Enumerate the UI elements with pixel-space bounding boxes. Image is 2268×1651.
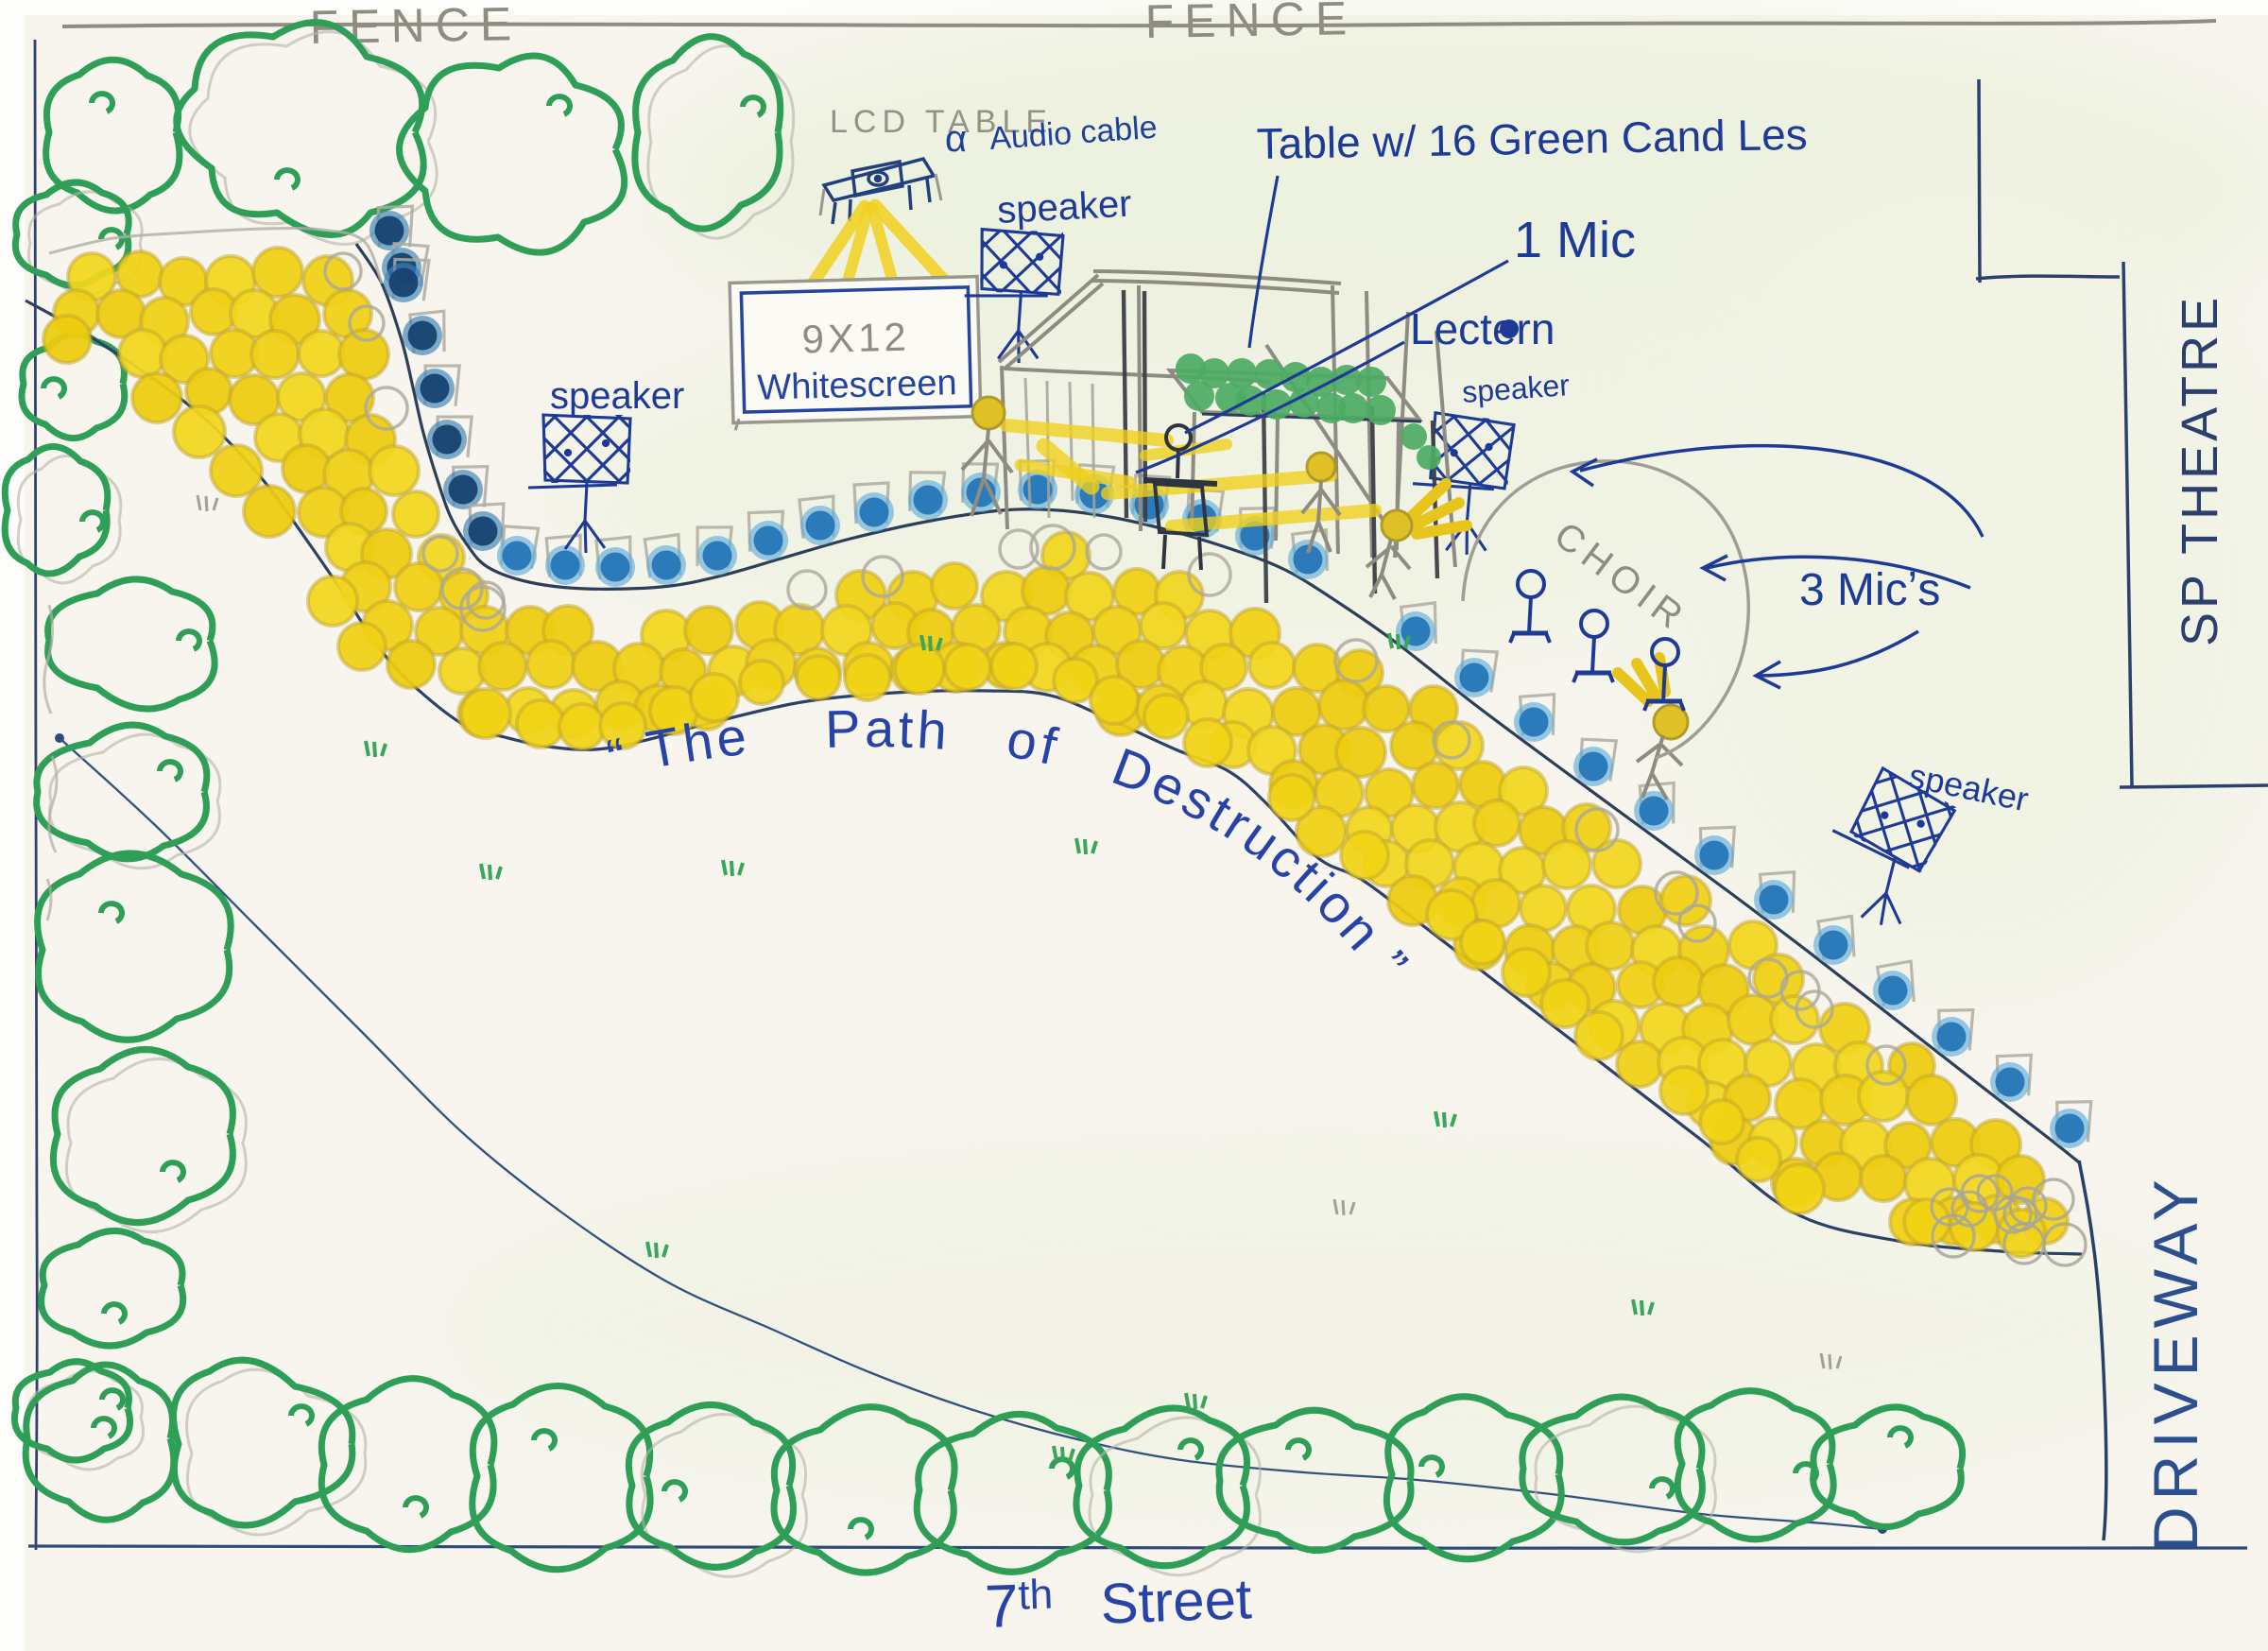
svg-text:speaker: speaker (550, 375, 684, 417)
svg-text:DRIVEWAY: DRIVEWAY (2140, 1173, 2210, 1552)
svg-text:1 Mic: 1 Mic (1514, 212, 1636, 268)
svg-text:FENCE: FENCE (1144, 0, 1357, 48)
svg-text:Lectern: Lectern (1410, 304, 1555, 353)
svg-text:α: α (945, 118, 967, 160)
svg-text:Whitescreen: Whitescreen (757, 363, 957, 408)
svg-text:Table w/ 16 Green Cand Les: Table w/ 16 Green Cand Les (1256, 110, 1808, 168)
svg-text:9X12: 9X12 (801, 314, 910, 361)
svg-text:speaker: speaker (996, 183, 1132, 232)
svg-text:SP THEATRE: SP THEATRE (2172, 294, 2228, 646)
